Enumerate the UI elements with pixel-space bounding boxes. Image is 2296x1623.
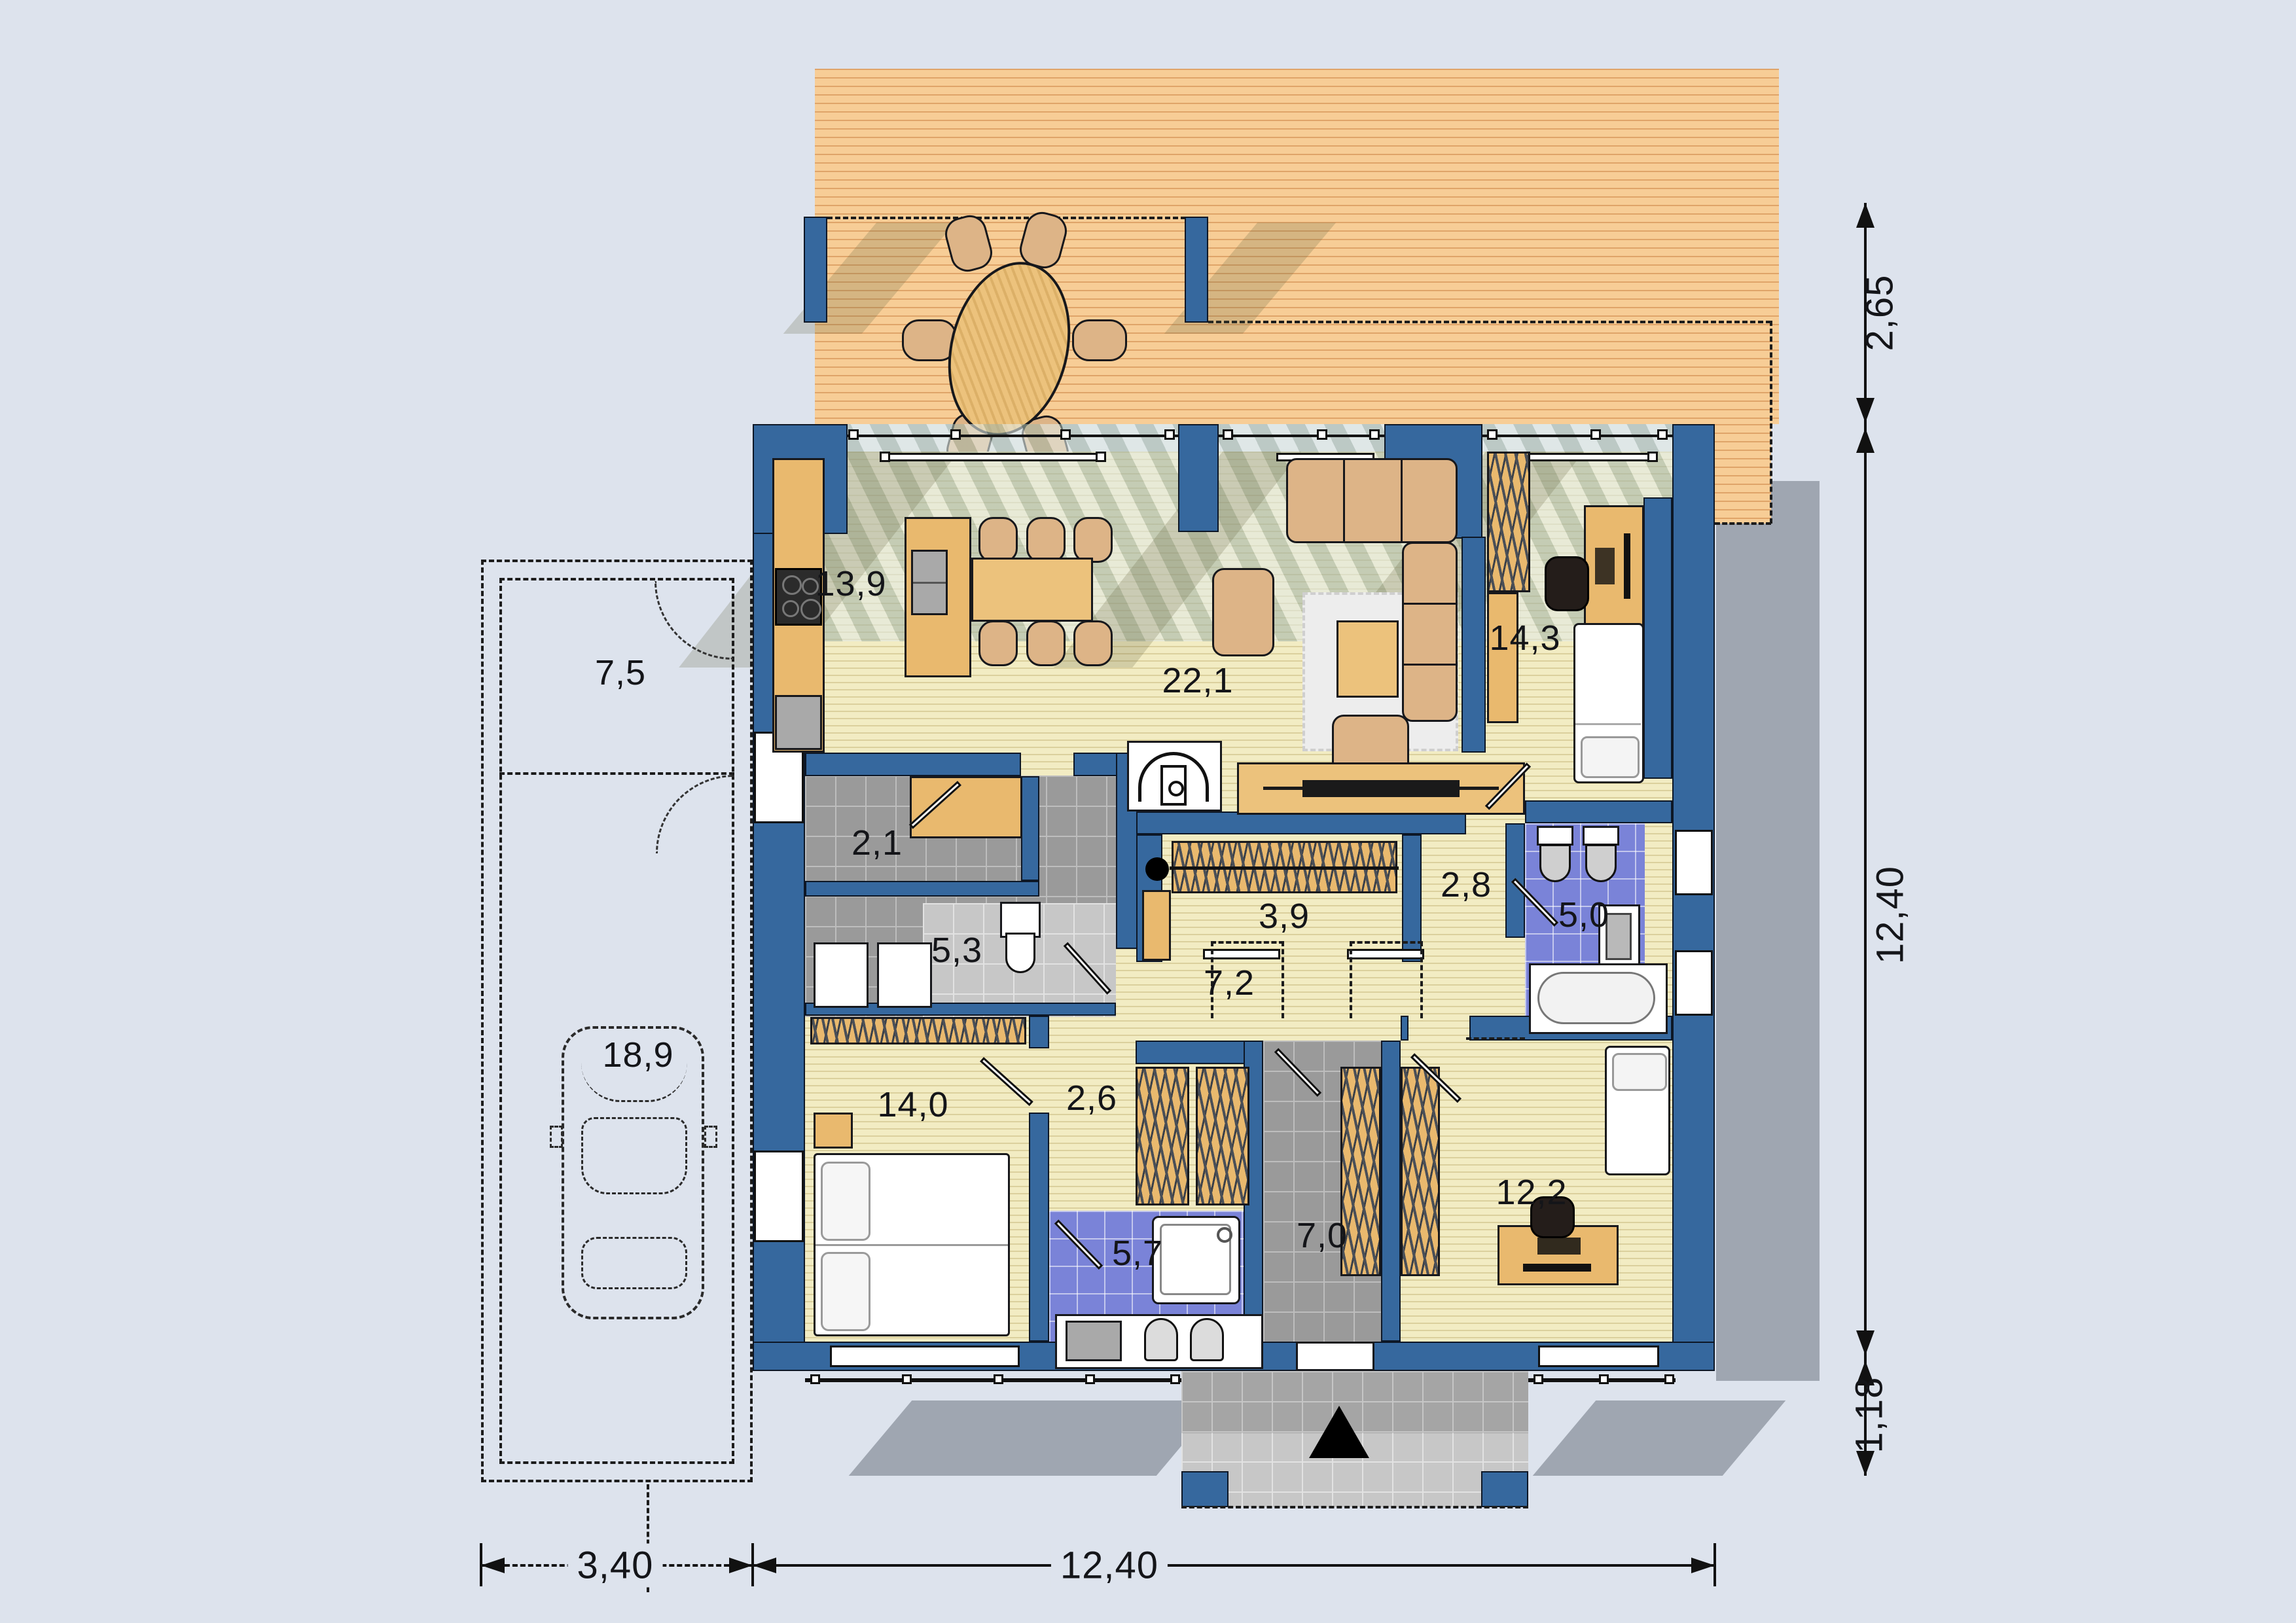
window-left-bedroom <box>754 1150 804 1242</box>
room-label-kitchen: 13,9 <box>815 563 886 604</box>
terrace-deck-right-strip <box>1715 424 1771 524</box>
glazing-post <box>1657 429 1668 440</box>
wall-kitchen-bottom-b <box>1073 753 1118 776</box>
dim-label-bottom-house: 12,40 <box>1051 1544 1168 1588</box>
toilet-utility-bowl <box>1005 933 1035 973</box>
kitchen-appliance <box>775 695 822 750</box>
glazing-post <box>1590 429 1601 440</box>
house-shadow-bottom-right <box>1533 1400 1785 1476</box>
car-mirror-left <box>550 1126 563 1148</box>
wall-bedroomleft-right-a <box>1029 1016 1049 1048</box>
room-label-small-hall: 2,8 <box>1441 865 1492 905</box>
wardrobe-strip-bedroom-left <box>810 1017 1026 1044</box>
room-label-bedroom-tr: 14,3 <box>1489 618 1560 658</box>
terrace-chair <box>1072 319 1127 361</box>
glazing-post <box>1223 429 1233 440</box>
rail-post <box>1534 1374 1543 1384</box>
glazing-post <box>1317 429 1327 440</box>
tv-stand-line <box>1263 787 1499 790</box>
wall-kitchen-bottom-a <box>805 753 1021 776</box>
terrace-roof-dashed-bottom <box>1715 522 1771 525</box>
wardrobe-bedroom-tr <box>1487 452 1530 592</box>
dining-chair <box>978 517 1018 563</box>
toilet-bath-top-bowl <box>1539 844 1571 882</box>
bathtub <box>1529 963 1668 1034</box>
nightstand-bedroom-left <box>814 1113 853 1149</box>
car-mirror-right <box>704 1126 717 1148</box>
terrace-wall-stub-right <box>1185 217 1208 323</box>
room-label-bedroom-br: 12,2 <box>1496 1172 1567 1213</box>
wall-right <box>1672 424 1715 1371</box>
dryer <box>877 942 932 1008</box>
glazing-post <box>1060 429 1071 440</box>
house-shadow-bottom-left <box>849 1400 1219 1476</box>
sink-divider <box>913 582 946 584</box>
fireplace-knob <box>1168 781 1184 796</box>
window-right-bath-2 <box>1675 950 1713 1016</box>
glazing-post <box>1369 429 1380 440</box>
bathtub-inner <box>1537 972 1655 1024</box>
bed-seam <box>816 1244 1008 1246</box>
dim-arrow <box>1856 398 1874 423</box>
bidet-bath-top <box>1583 826 1619 846</box>
house-shadow-right <box>1716 481 1820 1381</box>
dim-label-bottom-garage: 3,40 <box>568 1544 663 1588</box>
car-rear-window <box>581 1237 687 1289</box>
bed-bedroom-br <box>1605 1046 1670 1175</box>
rail-post <box>902 1374 912 1384</box>
pillar-top-a <box>1178 424 1219 532</box>
closet-side-cabinet <box>1142 890 1171 961</box>
window-bottom-bedroom-right <box>1538 1346 1659 1367</box>
floor-plan-scene: 13,9 22,1 14,3 2,1 5,3 3,9 2,8 5,0 7,2 2… <box>0 0 2296 1623</box>
closet-rod-line <box>1170 866 1399 870</box>
rail-post <box>1599 1374 1609 1384</box>
wall-pier-right <box>1643 497 1672 779</box>
terrace-roof-dashed-right <box>1208 321 1771 323</box>
dim-label-right-bottom: 1,18 <box>1848 1377 1892 1454</box>
dim-label-right-main: 12,40 <box>1869 866 1912 964</box>
terrace-roof-dashed-side <box>1770 321 1772 524</box>
wardrobe-column-1 <box>1136 1067 1189 1205</box>
bed-pillow <box>1581 736 1640 778</box>
closet-bedroom-br <box>1401 1067 1440 1276</box>
glazing-post <box>1487 429 1498 440</box>
wall-bedroomleft-right-b <box>1029 1113 1049 1342</box>
sofa-right <box>1402 542 1458 722</box>
closet-column-dot <box>1145 857 1169 881</box>
keyboard-icon <box>1537 1238 1581 1255</box>
wall-pantry-right <box>1021 776 1039 881</box>
closet-rod <box>1172 841 1397 893</box>
wall-pantry-bottom <box>805 881 1039 897</box>
dim-arrow <box>1856 203 1874 228</box>
cooktop-burner <box>782 600 799 617</box>
entrance-triangle-icon <box>1309 1406 1369 1458</box>
dim-arrow <box>1856 428 1874 453</box>
wall-living-bottom <box>1136 811 1466 834</box>
dim-arrow <box>1691 1558 1715 1573</box>
room-label-pantry: 2,1 <box>852 823 903 863</box>
washer <box>814 942 869 1008</box>
car-windshield <box>581 1117 687 1194</box>
dim-arrow <box>1856 1330 1874 1355</box>
dining-chair <box>978 620 1018 666</box>
room-label-utility: 5,3 <box>931 930 982 971</box>
dim-line-right <box>1864 203 1867 1476</box>
dim-label-right-top: 2,65 <box>1858 275 1902 351</box>
bidet-bath-bottom <box>1190 1318 1224 1361</box>
glazing-post <box>848 429 859 440</box>
wall-bedroom-br-top-a <box>1401 1016 1408 1041</box>
bidet-bath-top-bowl <box>1585 844 1617 882</box>
opening-small-hall <box>1466 1037 1525 1040</box>
wardrobe-column-2 <box>1196 1067 1249 1205</box>
sofa-top <box>1286 458 1458 543</box>
monitor-icon <box>1624 533 1630 599</box>
fireplace <box>1127 741 1222 811</box>
wall-hall-right <box>1381 1041 1401 1342</box>
dining-chair <box>1073 620 1113 666</box>
rail-post <box>810 1374 820 1384</box>
wall-bedroom-tr-left <box>1462 537 1486 753</box>
glazing-line-2 <box>1219 435 1384 437</box>
dim-tick <box>751 1543 754 1586</box>
dim-tick <box>480 1543 482 1586</box>
dining-chair <box>1026 517 1066 563</box>
room-label-closet: 3,9 <box>1259 896 1310 936</box>
room-label-garage-storage: 7,5 <box>595 652 646 693</box>
room-label-wardrobe-hall: 2,6 <box>1066 1078 1117 1118</box>
bed-pillow <box>1612 1053 1667 1091</box>
rail-post <box>1664 1374 1674 1384</box>
keyboard-icon <box>1595 548 1615 584</box>
room-label-bath-bottom: 5,7 <box>1112 1233 1163 1274</box>
room-label-bedroom-left: 14,0 <box>877 1084 948 1125</box>
room-label-corridor: 7,2 <box>1204 963 1255 1003</box>
glazing-post <box>1164 429 1175 440</box>
office-chair-tr <box>1545 556 1589 611</box>
cooktop-burner <box>782 575 802 595</box>
rail-post <box>994 1374 1003 1384</box>
dining-chair <box>1073 517 1113 563</box>
room-label-garage: 18,9 <box>602 1035 673 1075</box>
rail-post <box>1170 1374 1180 1384</box>
garage-outline-inner <box>499 578 734 1464</box>
dim-arrow <box>729 1558 753 1573</box>
glazing-line-3 <box>1482 435 1672 437</box>
bed-pillow <box>821 1252 870 1331</box>
pantry-cabinet <box>910 776 1022 838</box>
dim-arrow <box>481 1558 505 1573</box>
dim-tick <box>1713 1543 1716 1586</box>
glazing-line-1 <box>848 435 1178 437</box>
window-bar-top-1 <box>885 453 1101 461</box>
dim-arrow <box>1856 1451 1874 1476</box>
window-bottom-bedroom-left <box>830 1346 1020 1367</box>
monitor-icon <box>1523 1264 1591 1272</box>
bed-blanket-line <box>1575 723 1641 725</box>
room-label-entry-hall: 7,0 <box>1297 1215 1348 1256</box>
terrace-wall-stub-left <box>804 217 827 323</box>
window-bar-post <box>880 452 890 462</box>
front-door-opening <box>1296 1342 1374 1371</box>
corridor-dashed-opening-2 <box>1350 941 1423 1018</box>
window-right-bath-1 <box>1675 830 1713 895</box>
window-bar-post <box>1647 452 1658 462</box>
room-label-living: 22,1 <box>1162 660 1233 701</box>
shower <box>1152 1216 1240 1304</box>
porch-dashed-edge <box>1181 1506 1528 1508</box>
porch-stub-right <box>1481 1471 1528 1507</box>
toilet-bath-top <box>1537 826 1573 846</box>
armchair-left <box>1212 568 1274 656</box>
garage-partition <box>499 772 734 775</box>
terrace-roof-dashed-left <box>827 217 1186 219</box>
dim-line-bottom-house <box>753 1564 1715 1567</box>
island-sink <box>911 550 948 615</box>
rail-post <box>1085 1374 1095 1384</box>
desk-bedroom-tr <box>1584 505 1644 626</box>
wall-bath-top <box>1525 800 1672 823</box>
bed-bedroom-left <box>814 1153 1010 1336</box>
coffee-table <box>1336 620 1399 698</box>
shower-drain <box>1217 1227 1232 1243</box>
window-bar-post <box>1096 452 1106 462</box>
dining-chair <box>1026 620 1066 666</box>
bed-bedroom-tr <box>1573 623 1644 783</box>
room-label-bath-top: 5,0 <box>1558 895 1609 935</box>
dining-table <box>971 558 1093 622</box>
glazing-post <box>950 429 961 440</box>
porch-stub-left <box>1181 1471 1229 1507</box>
dim-arrow <box>753 1558 776 1573</box>
bed-pillow <box>821 1162 870 1241</box>
sink-bath-bottom <box>1066 1321 1122 1361</box>
toilet-bath-bottom <box>1144 1318 1178 1361</box>
